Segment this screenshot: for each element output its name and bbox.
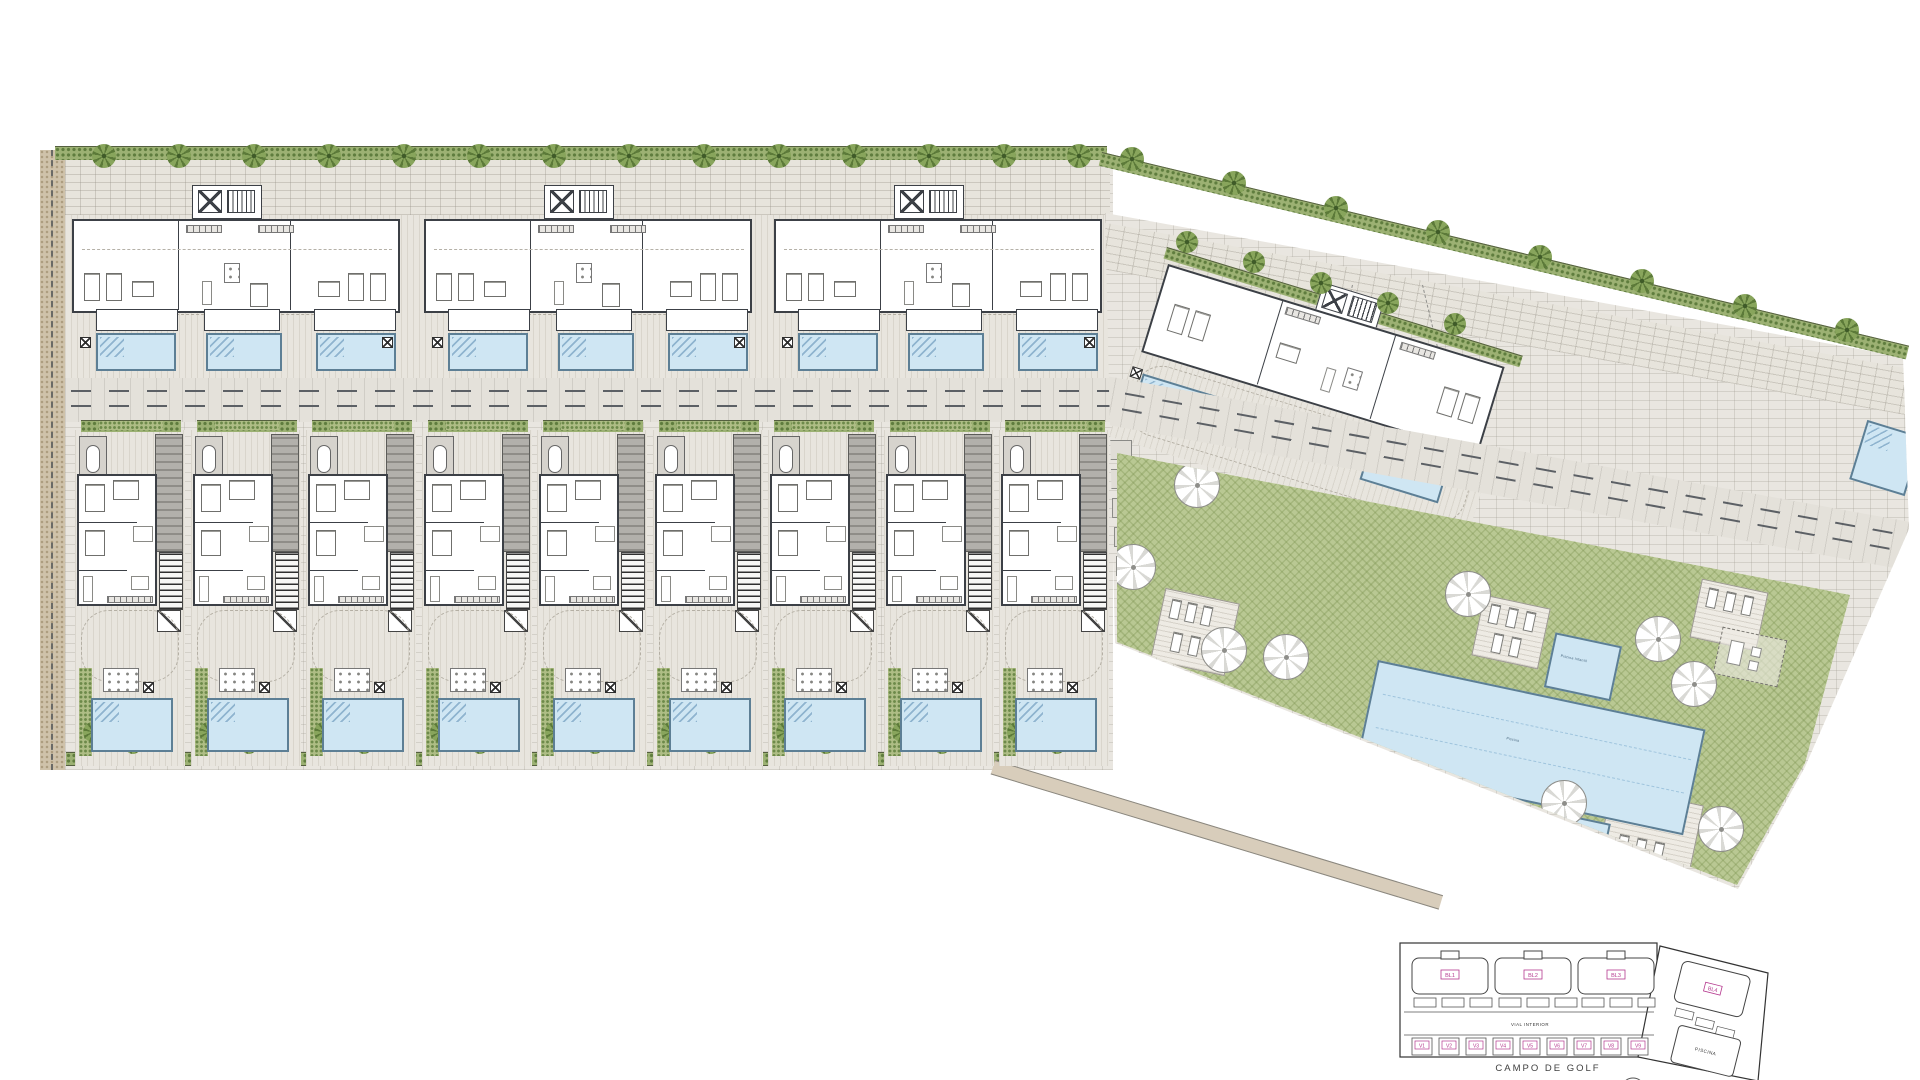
bathroom-icon	[364, 526, 384, 542]
tree-icon	[392, 144, 416, 168]
terrace-pool	[206, 333, 282, 371]
pool-steps	[326, 702, 350, 722]
sun-lounger-icon	[1200, 605, 1214, 627]
keyplan-road-label: VIAL INTERIOR	[1511, 1022, 1549, 1027]
keyplan-block-core	[1607, 951, 1625, 959]
sofa-icon	[892, 576, 902, 602]
drain-marker-icon	[374, 682, 385, 693]
keyplan-block-label: BL1	[1445, 973, 1455, 979]
sofa-icon	[314, 576, 324, 602]
umbrella-pole-icon	[1719, 827, 1724, 832]
tree-icon	[542, 144, 566, 168]
bed-icon	[700, 273, 716, 301]
outdoor-dining-icon	[796, 668, 832, 692]
tree-icon	[992, 144, 1016, 168]
villa-footprint	[1001, 474, 1081, 606]
bed-icon	[663, 484, 683, 512]
partition-wall	[195, 522, 253, 523]
drain-marker-icon	[721, 682, 732, 693]
main-pool: Piscina	[1355, 660, 1705, 835]
umbrella-icon	[1671, 661, 1717, 707]
partition-wall	[426, 570, 474, 571]
pool-steps	[562, 337, 586, 357]
bed-icon	[84, 273, 100, 301]
building-footprint	[424, 219, 752, 313]
tree-icon	[1176, 231, 1198, 253]
bed-icon	[1436, 386, 1459, 417]
villa-pool	[91, 698, 173, 752]
pool-steps	[442, 702, 466, 722]
tree-icon	[692, 144, 716, 168]
villa-footprint	[655, 474, 735, 606]
kitchen-icon	[1031, 596, 1077, 603]
umbrella-pole-icon	[1284, 655, 1289, 660]
planter-strip	[792, 421, 856, 430]
pool-steps	[211, 702, 235, 722]
corridor-line	[434, 249, 744, 250]
partition-wall	[310, 570, 358, 571]
elevator-icon	[198, 190, 222, 213]
keyplan-garages	[1414, 998, 1655, 1007]
sofa-icon	[430, 576, 440, 602]
villa-footprint	[770, 474, 850, 606]
pool-steps	[452, 337, 476, 357]
bed-icon	[348, 273, 364, 301]
chair-icon	[1747, 660, 1759, 672]
terrace-pool	[448, 333, 528, 371]
villa-pool	[207, 698, 289, 752]
villa-footprint	[886, 474, 966, 606]
pool-lane-line	[1376, 727, 1684, 793]
villa-pool	[900, 698, 982, 752]
elevator-icon	[550, 190, 574, 213]
elevator-icon	[900, 190, 924, 213]
villa-footprint	[193, 474, 273, 606]
perimeter-gravel-strip	[40, 150, 66, 770]
table-icon	[824, 576, 842, 590]
bed-icon	[670, 281, 692, 297]
villa-pool	[784, 698, 866, 752]
villa-footprint	[77, 474, 157, 606]
pool-steps	[788, 702, 812, 722]
corridor-line	[784, 249, 1094, 250]
drain-marker-icon	[836, 682, 847, 693]
tree-icon	[1120, 147, 1144, 171]
unit-divider-wall	[290, 221, 291, 310]
bed-icon	[250, 283, 268, 307]
tree-icon	[92, 144, 116, 168]
exterior-stairs	[275, 552, 299, 610]
jacuzzi-label: Jacuzzi	[1569, 832, 1583, 839]
living-bay	[666, 309, 748, 331]
bed-icon	[547, 530, 567, 556]
terrace-pool	[908, 333, 984, 371]
drain-marker-icon	[1084, 337, 1095, 348]
svg-text:V1: V1	[1419, 1044, 1425, 1050]
umbrella-pole-icon	[1656, 637, 1661, 642]
bed-icon	[547, 484, 567, 512]
bed-icon	[1275, 342, 1301, 364]
partition-wall	[310, 522, 368, 523]
campo-de-golf-label: CAMPO DE GOLF	[1495, 1063, 1600, 1074]
bed-icon	[436, 273, 452, 301]
villa-pool	[669, 698, 751, 752]
umbrella-pole-icon	[1692, 682, 1697, 687]
bathtub-icon	[895, 445, 909, 473]
living-bay	[314, 309, 396, 331]
tree-icon	[1067, 144, 1091, 168]
drain-marker-icon	[782, 337, 793, 348]
umbrella-pole-icon	[1222, 648, 1227, 653]
drain-marker-icon	[952, 682, 963, 693]
kids-pool: Piscina Infantil	[1544, 632, 1622, 701]
side-passage	[964, 434, 992, 552]
bed-icon	[691, 480, 717, 500]
outdoor-dining-icon	[912, 668, 948, 692]
bathtub-icon	[202, 445, 216, 473]
villa-pool	[322, 698, 404, 752]
keyplan-drawing: BL1 BL2 BL3 VIAL INTERIOR V1	[1398, 938, 1773, 1080]
terrace-pool	[96, 333, 176, 371]
bed-icon	[201, 484, 221, 512]
sofa-icon	[83, 576, 93, 602]
unit-divider-wall	[880, 221, 881, 310]
bathroom-icon	[942, 526, 962, 542]
umbrella-icon	[1698, 806, 1744, 852]
bed-icon	[113, 480, 139, 500]
table-icon	[940, 576, 958, 590]
bed-icon	[132, 281, 154, 297]
bathroom-icon	[595, 526, 615, 542]
svg-text:V2: V2	[1446, 1044, 1452, 1050]
umbrella-pole-icon	[1562, 801, 1567, 806]
kitchen-icon	[107, 596, 153, 603]
kitchen-icon	[1284, 307, 1321, 325]
drain-marker-icon	[143, 682, 154, 693]
bathroom-icon	[133, 526, 153, 542]
partition-wall	[79, 570, 127, 571]
apartment-block	[420, 185, 756, 381]
bathtub-icon	[433, 445, 447, 473]
tree-icon	[1324, 196, 1348, 220]
dining-table-icon	[576, 263, 592, 283]
bed-icon	[952, 283, 970, 307]
tree-icon	[167, 144, 191, 168]
side-passage	[1079, 434, 1107, 552]
bed-icon	[778, 530, 798, 556]
svg-text:V9: V9	[1635, 1044, 1641, 1050]
tree-icon	[842, 144, 866, 168]
table-icon	[593, 576, 611, 590]
stairs-icon	[1347, 295, 1378, 323]
villa-footprint	[424, 474, 504, 606]
kitchen-icon	[338, 596, 384, 603]
partition-wall	[657, 570, 705, 571]
boundary-dashed-line	[51, 150, 53, 770]
bed-icon	[1009, 484, 1029, 512]
bed-icon	[1020, 281, 1042, 297]
villa	[191, 420, 301, 766]
umbrella-icon	[1263, 634, 1309, 680]
bed-icon	[834, 281, 856, 297]
bed-icon	[778, 484, 798, 512]
chair-icon	[1750, 646, 1762, 658]
sofa-icon	[776, 576, 786, 602]
planter-strip	[330, 421, 394, 430]
kitchen-icon	[888, 225, 924, 233]
sofa-icon	[202, 281, 212, 305]
right-parcel: Piscina Infantil Piscina Jacuzzi	[1105, 205, 1917, 905]
unit-divider-wall	[178, 221, 179, 310]
partition-wall	[657, 522, 715, 523]
kitchen-icon	[1399, 342, 1436, 360]
road-vial-interior	[65, 378, 1115, 422]
kitchen-icon	[569, 596, 615, 603]
bathroom-icon	[1057, 526, 1077, 542]
bed-icon	[1072, 273, 1088, 301]
pool-steps	[210, 337, 234, 357]
partition-wall	[772, 570, 820, 571]
bathtub-icon	[664, 445, 678, 473]
umbrella-icon	[1445, 571, 1491, 617]
table-icon	[709, 576, 727, 590]
tree-icon	[767, 144, 791, 168]
bed-icon	[602, 283, 620, 307]
bed-icon	[1037, 480, 1063, 500]
living-bay	[906, 309, 982, 331]
sun-lounger-icon	[1187, 635, 1201, 657]
sofa-icon	[904, 281, 914, 305]
jacuzzi-pool: Jacuzzi	[1556, 814, 1611, 863]
pool-steps	[320, 337, 344, 357]
kitchen-icon	[258, 225, 294, 233]
bed-icon	[1009, 530, 1029, 556]
pool-lane-line	[1383, 694, 1691, 760]
partition-wall	[1003, 522, 1061, 523]
villa-pool	[1015, 698, 1097, 752]
bed-icon	[663, 530, 683, 556]
pool-steps	[1019, 702, 1043, 722]
sofa-icon	[661, 576, 671, 602]
outdoor-dining-icon	[565, 668, 601, 692]
bed-icon	[1188, 310, 1211, 341]
bathtub-icon	[779, 445, 793, 473]
bed-icon	[460, 480, 486, 500]
stair-core	[544, 185, 614, 219]
drain-marker-icon	[259, 682, 270, 693]
exterior-stairs	[737, 552, 761, 610]
keyplan-villa-labels: V1 V2 V3 V4 V5 V6 V7 V8 V9	[1415, 1041, 1645, 1050]
terrace-pool	[798, 333, 878, 371]
villa	[653, 420, 763, 766]
svg-text:V8: V8	[1608, 1044, 1614, 1050]
exterior-stairs	[852, 552, 876, 610]
bathtub-icon	[548, 445, 562, 473]
umbrella-icon	[1635, 616, 1681, 662]
building-footprint	[72, 219, 400, 313]
bed-icon	[316, 484, 336, 512]
partition-wall	[888, 570, 936, 571]
living-bay	[96, 309, 178, 331]
corridor-line	[82, 249, 392, 250]
pool-steps	[557, 702, 581, 722]
kitchen-icon	[610, 225, 646, 233]
tree-icon	[242, 144, 266, 168]
planter-strip	[677, 421, 741, 430]
umbrella-pole-icon	[1466, 592, 1471, 597]
table-icon	[1055, 576, 1073, 590]
stair-core	[192, 185, 262, 219]
sun-lounger-icon	[1705, 587, 1719, 609]
sun-lounger-icon	[1169, 632, 1183, 654]
top-boundary-hedge	[55, 146, 1107, 160]
table-icon	[478, 576, 496, 590]
pool-steps	[1864, 425, 1893, 451]
kitchen-icon	[685, 596, 731, 603]
road-center-dash	[71, 405, 1111, 407]
bed-icon	[1457, 393, 1480, 424]
svg-text:V4: V4	[1500, 1044, 1506, 1050]
kitchen-icon	[960, 225, 996, 233]
keyplan-block-core	[1524, 951, 1542, 959]
kitchen-icon	[186, 225, 222, 233]
bed-icon	[786, 273, 802, 301]
main-pool-label: Piscina	[1506, 736, 1520, 743]
bed-icon	[316, 530, 336, 556]
keyplan-block-label: BL3	[1611, 973, 1621, 979]
svg-text:V6: V6	[1554, 1044, 1560, 1050]
dining-table-icon	[1342, 367, 1363, 391]
drain-marker-icon	[734, 337, 745, 348]
sun-lounger-icon	[1184, 602, 1198, 624]
drain-marker-icon	[382, 337, 393, 348]
kids-pool-label: Piscina Infantil	[1560, 654, 1587, 664]
drain-marker-icon	[490, 682, 501, 693]
outdoor-dining-icon	[681, 668, 717, 692]
outdoor-dining-icon	[103, 668, 139, 692]
villa	[537, 420, 647, 766]
bed-icon	[922, 480, 948, 500]
pool-steps	[802, 337, 826, 357]
sofa-icon	[545, 576, 555, 602]
side-passage	[271, 434, 299, 552]
planter-strip	[215, 421, 279, 430]
kitchen-icon	[538, 225, 574, 233]
bed-icon	[432, 484, 452, 512]
villa	[884, 420, 994, 766]
tree-icon	[917, 144, 941, 168]
pool-steps	[100, 337, 124, 357]
bathroom-icon	[249, 526, 269, 542]
planter-strip	[908, 421, 972, 430]
bed-icon	[201, 530, 221, 556]
bed-icon	[575, 480, 601, 500]
living-bay	[448, 309, 530, 331]
kitchen-icon	[223, 596, 269, 603]
pool-steps	[672, 337, 696, 357]
side-passage	[733, 434, 761, 552]
svg-text:V7: V7	[1581, 1044, 1587, 1050]
bed-icon	[318, 281, 340, 297]
bathroom-icon	[480, 526, 500, 542]
partition-wall	[772, 522, 830, 523]
pool-steps	[95, 702, 119, 722]
bed-icon	[344, 480, 370, 500]
drain-marker-icon	[605, 682, 616, 693]
partition-wall	[195, 570, 243, 571]
table-icon	[131, 576, 149, 590]
bathroom-icon	[711, 526, 731, 542]
exterior-stairs	[390, 552, 414, 610]
outdoor-dining-icon	[1027, 668, 1063, 692]
side-passage	[617, 434, 645, 552]
partition-wall	[541, 522, 599, 523]
drain-marker-icon	[432, 337, 443, 348]
planter-strip	[561, 421, 625, 430]
pool-steps	[1022, 337, 1046, 357]
boundary-path	[991, 760, 1443, 910]
building-footprint	[774, 219, 1102, 313]
partition-wall	[426, 522, 484, 523]
sun-lounger-icon	[1168, 599, 1182, 621]
kitchen-icon	[800, 596, 846, 603]
bed-icon	[370, 273, 386, 301]
sun-lounger-icon	[1740, 595, 1754, 617]
umbrella-pole-icon	[1131, 565, 1136, 570]
tree-icon	[1243, 251, 1265, 273]
living-bay	[204, 309, 280, 331]
side-passage	[386, 434, 414, 552]
tree-icon	[1835, 318, 1859, 342]
pool-steps	[673, 702, 697, 722]
villa	[768, 420, 878, 766]
bed-icon	[432, 530, 452, 556]
outdoor-dining-icon	[219, 668, 255, 692]
living-bay	[1016, 309, 1098, 331]
villa	[306, 420, 416, 766]
tree-icon	[467, 144, 491, 168]
side-passage	[155, 434, 183, 552]
unit-divider-wall	[530, 221, 531, 310]
bed-icon	[1050, 273, 1066, 301]
sofa-icon	[1007, 576, 1017, 602]
tree-icon	[617, 144, 641, 168]
bathtub-icon	[86, 445, 100, 473]
kitchen-icon	[454, 596, 500, 603]
outdoor-dining-icon	[450, 668, 486, 692]
villa-pool	[438, 698, 520, 752]
villa-footprint	[539, 474, 619, 606]
svg-text:V3: V3	[1473, 1044, 1479, 1050]
bed-icon	[722, 273, 738, 301]
bed-icon	[1167, 304, 1190, 335]
apartment-block	[68, 185, 404, 381]
living-bay	[798, 309, 880, 331]
living-bay	[556, 309, 632, 331]
bathroom-icon	[826, 526, 846, 542]
planter-strip	[99, 421, 163, 430]
side-passage	[848, 434, 876, 552]
bed-icon	[85, 530, 105, 556]
communal-pools-group: Piscina Infantil Piscina Jacuzzi	[1346, 570, 1734, 881]
exterior-stairs	[968, 552, 992, 610]
umbrella-pole-icon	[1195, 483, 1200, 488]
exterior-stairs	[506, 552, 530, 610]
svg-text:V5: V5	[1527, 1044, 1533, 1050]
dining-table-icon	[224, 263, 240, 283]
keyplan-block-core	[1441, 951, 1459, 959]
exterior-stairs	[1083, 552, 1107, 610]
